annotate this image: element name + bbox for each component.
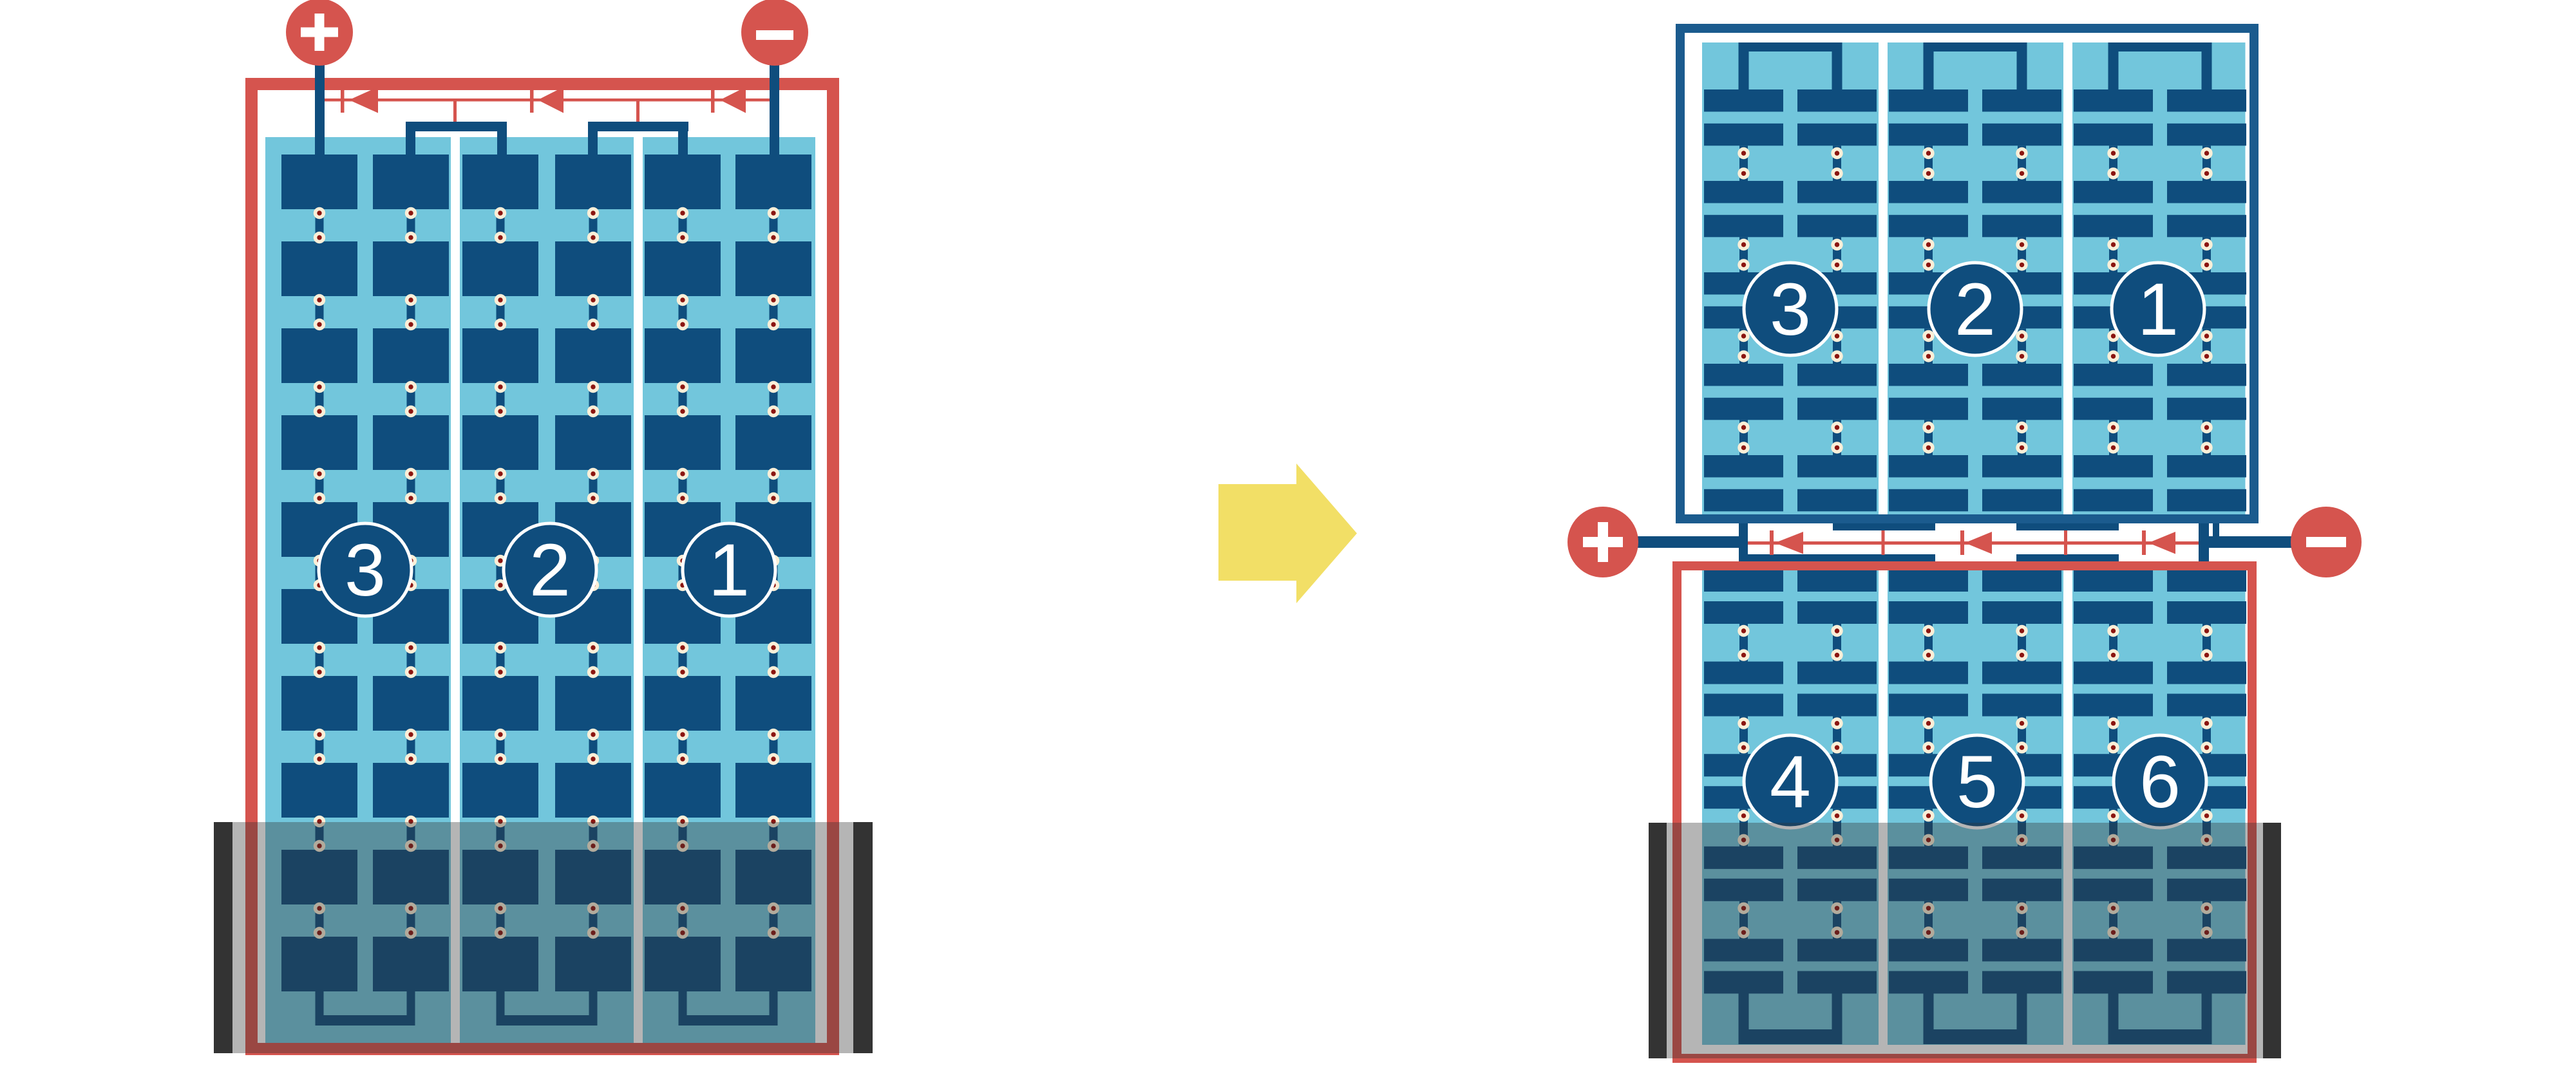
svg-text:3: 3 [345, 529, 386, 612]
svg-text:3: 3 [1770, 268, 1811, 351]
svg-text:2: 2 [529, 529, 571, 612]
svg-text:6: 6 [2139, 741, 2181, 823]
svg-text:4: 4 [1770, 741, 1811, 823]
svg-text:2: 2 [1955, 268, 1996, 351]
svg-text:1: 1 [708, 529, 750, 612]
svg-text:1: 1 [2137, 268, 2179, 351]
svg-text:5: 5 [1956, 741, 1998, 823]
